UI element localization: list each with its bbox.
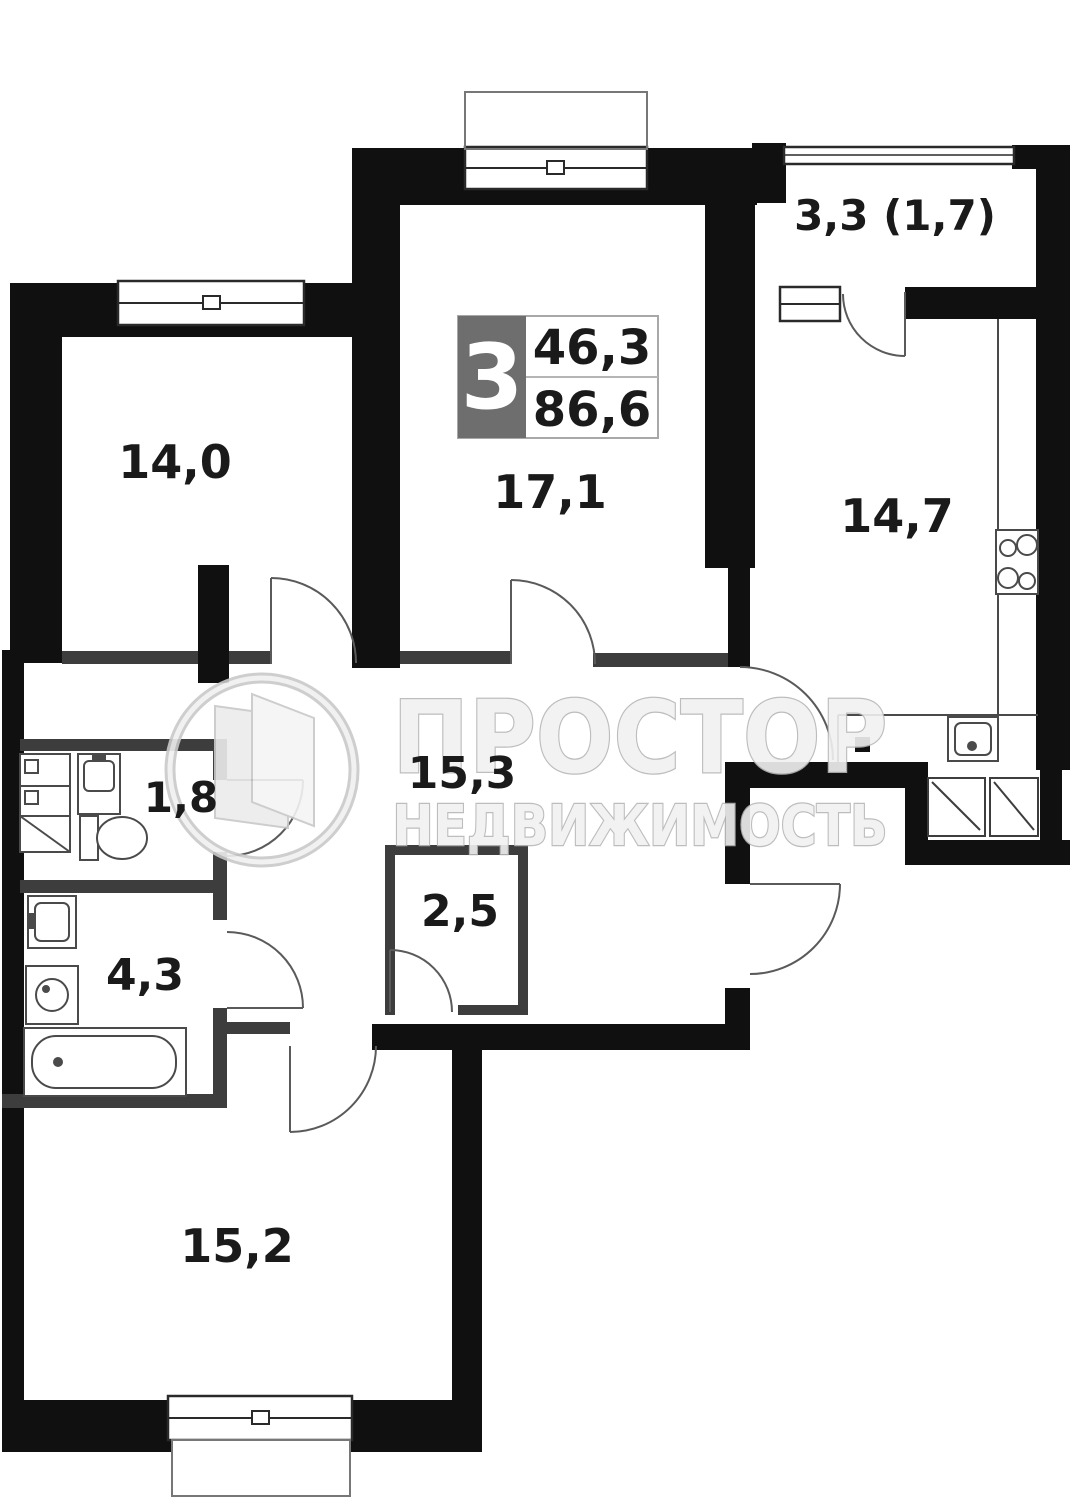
door-storage <box>390 950 452 1012</box>
shaft-box-icon <box>20 754 70 852</box>
info-box-living-area: 46,3 <box>533 320 651 376</box>
room-label-kitchen: 14,7 <box>840 489 954 543</box>
door-bathroom <box>227 932 303 1008</box>
watermark-logo-icon <box>170 678 354 862</box>
window-room-15-2 <box>168 1396 352 1496</box>
bath-sink-icon <box>28 896 76 948</box>
window-room-14-0 <box>118 281 304 325</box>
door-room-14-0 <box>271 578 356 664</box>
balcony-glazing <box>784 147 1014 164</box>
room-label-storage: 2,5 <box>421 886 499 937</box>
entrance-niches <box>928 778 1038 836</box>
room-label-15-2: 15,2 <box>180 1219 294 1273</box>
wc-sink-icon <box>78 754 120 814</box>
wc-fixtures <box>20 754 147 860</box>
door-balcony <box>843 292 905 356</box>
room-label-17-1: 17,1 <box>493 465 607 519</box>
washing-machine-icon <box>26 966 78 1024</box>
door-room-15-2 <box>290 1046 376 1132</box>
room-label-hallway: 15,3 <box>408 748 517 799</box>
balcony-ledge-top <box>465 92 647 149</box>
room-label-balcony: 3,3 (1,7) <box>794 191 996 240</box>
floor-plan: ПРОСТОР НЕДВИЖИМОСТЬ 3 46,3 86,6 14,0 17… <box>0 0 1080 1512</box>
room-label-wc: 1,8 <box>144 773 218 822</box>
room-label-bathroom: 4,3 <box>106 950 184 1001</box>
info-box: 3 46,3 86,6 <box>458 316 658 438</box>
watermark-line2: НЕДВИЖИМОСТЬ <box>393 794 888 859</box>
toilet-icon <box>80 816 147 860</box>
window-room-17-1 <box>465 147 647 189</box>
room-label-14-0: 14,0 <box>118 435 232 489</box>
info-box-room-count: 3 <box>461 325 524 430</box>
window-balcony-kitchen <box>780 287 840 321</box>
kitchen-sink-icon <box>948 717 998 761</box>
bathtub-icon <box>24 1028 186 1096</box>
info-box-total-area: 86,6 <box>533 382 651 438</box>
door-room-17-1 <box>511 580 595 664</box>
stove-icon <box>996 530 1038 594</box>
door-entrance <box>750 884 840 974</box>
floor-plan-page: ПРОСТОР НЕДВИЖИМОСТЬ 3 46,3 86,6 14,0 17… <box>0 0 1080 1512</box>
watermark: ПРОСТОР НЕДВИЖИМОСТЬ <box>170 678 888 862</box>
